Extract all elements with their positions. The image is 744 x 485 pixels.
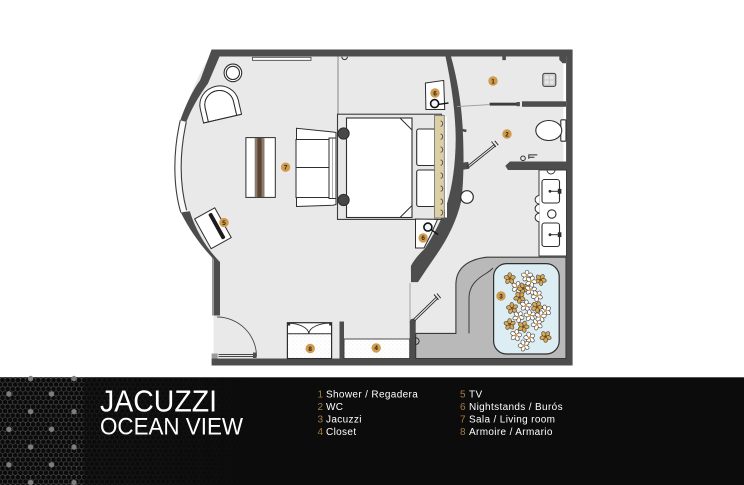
svg-text:4: 4 <box>374 345 378 352</box>
svg-text:2: 2 <box>505 131 509 138</box>
svg-text:5TV: 5TV <box>460 390 482 401</box>
svg-text:7: 7 <box>284 165 288 172</box>
svg-text:6: 6 <box>433 90 437 97</box>
svg-text:8: 8 <box>308 346 312 353</box>
svg-text:1Shower / Regadera: 1Shower / Regadera <box>318 390 419 401</box>
svg-text:5: 5 <box>222 220 226 227</box>
svg-text:1: 1 <box>491 78 495 85</box>
svg-text:6: 6 <box>421 235 425 242</box>
svg-text:2WC: 2WC <box>318 402 344 413</box>
svg-text:6Nightstands / Burós: 6Nightstands / Burós <box>460 402 563 413</box>
svg-text:OCEAN VIEW: OCEAN VIEW <box>100 414 243 441</box>
svg-text:3: 3 <box>499 293 503 300</box>
svg-text:4Closet: 4Closet <box>318 427 357 438</box>
svg-text:7Sala / Living room: 7Sala / Living room <box>460 414 555 425</box>
svg-text:8Armoire / Armario: 8Armoire / Armario <box>460 427 553 438</box>
